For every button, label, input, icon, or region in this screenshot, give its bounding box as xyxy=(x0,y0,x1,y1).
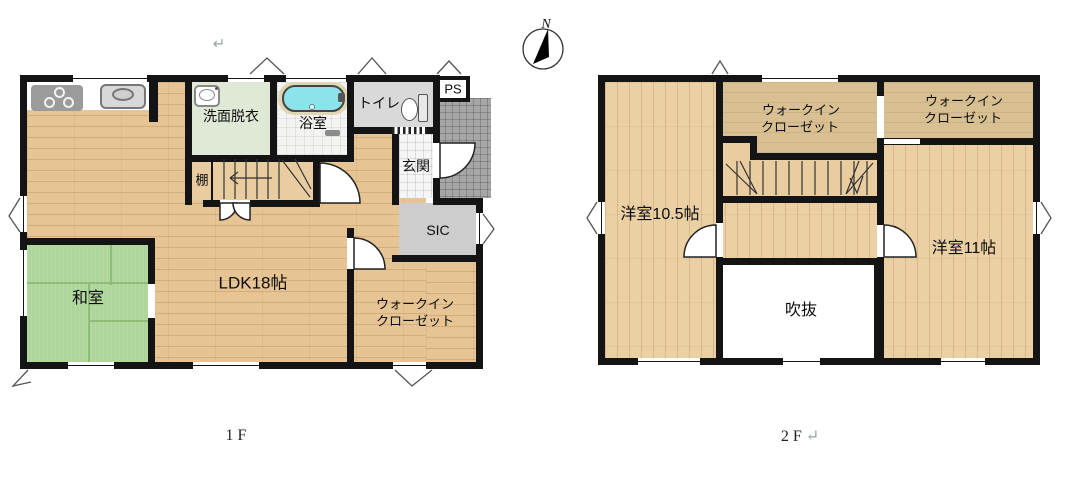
window xyxy=(20,250,27,316)
window xyxy=(598,202,605,234)
label-wic-mid: クローゼット xyxy=(761,121,839,134)
label-toilet: トイレ xyxy=(358,96,400,110)
window xyxy=(638,358,700,365)
wall xyxy=(347,75,354,162)
door-opening xyxy=(220,200,250,207)
window xyxy=(941,358,985,365)
window xyxy=(193,362,259,369)
wall xyxy=(347,269,354,369)
wall xyxy=(148,318,155,369)
window xyxy=(476,213,483,244)
wall xyxy=(877,163,884,225)
stairs-1f xyxy=(213,158,313,200)
label-room105: 洋室10.5帖 xyxy=(620,207,699,223)
faucet-dot-icon xyxy=(215,87,218,90)
sliding-door-opening xyxy=(148,284,155,318)
label-wic-mid: ウォークイン xyxy=(762,104,840,117)
wall xyxy=(250,200,320,207)
shower-mixer-icon xyxy=(325,130,340,136)
toilet-tank-icon xyxy=(418,94,428,122)
wall xyxy=(874,265,882,358)
compass-north-label: N xyxy=(540,17,551,32)
compass: N xyxy=(523,17,563,69)
sink-basin-icon xyxy=(112,88,134,101)
burner-icon xyxy=(54,87,65,98)
label-ps: PS xyxy=(444,83,461,96)
label-wic-1f: クローゼット xyxy=(376,315,454,328)
wall xyxy=(27,238,155,245)
wall xyxy=(347,228,354,238)
wall xyxy=(148,238,155,284)
wall xyxy=(149,75,158,122)
label-wic-right: ウォークイン xyxy=(925,95,1003,108)
window xyxy=(73,75,147,82)
label-washitsu: 和室 xyxy=(72,291,104,307)
label-bathroom: 浴室 xyxy=(299,116,327,130)
wall xyxy=(392,255,483,262)
label-wic-1f: ウォークイン xyxy=(376,298,454,311)
door-opening xyxy=(347,238,354,269)
vent-louver xyxy=(392,127,427,134)
burner-icon xyxy=(44,97,55,108)
compass-needle-icon xyxy=(533,29,549,64)
window xyxy=(68,362,114,369)
window xyxy=(1033,202,1040,234)
label-shelf: 棚 xyxy=(195,174,208,187)
door-opening xyxy=(433,143,440,178)
door-opening xyxy=(716,223,723,257)
stairs-2f xyxy=(723,160,877,196)
tub-drain-icon xyxy=(309,104,315,110)
porch-tile xyxy=(438,98,491,198)
window xyxy=(20,196,27,232)
wall xyxy=(723,136,757,143)
closet-opening xyxy=(884,139,920,144)
label-ldk: LDK18帖 xyxy=(219,275,288,292)
wall xyxy=(716,265,723,358)
wall xyxy=(755,153,884,160)
wall xyxy=(185,155,354,162)
window xyxy=(783,358,820,365)
label-washroom: 洗面脱衣 xyxy=(203,109,259,123)
wall xyxy=(716,258,884,265)
tatami-seam xyxy=(110,245,112,285)
wall xyxy=(203,200,220,207)
tub-faucet-icon xyxy=(338,93,345,102)
paragraph-mark: ↵ xyxy=(213,37,226,52)
wall xyxy=(716,196,884,203)
toilet-bowl-icon xyxy=(401,98,418,121)
window xyxy=(393,362,426,369)
label-entrance: 玄関 xyxy=(402,159,430,173)
washbasin-bowl-icon xyxy=(199,89,215,101)
window xyxy=(228,75,264,82)
burner-icon xyxy=(63,97,74,108)
caption-2f: 2F↵ xyxy=(781,426,819,446)
door-opening xyxy=(877,225,884,257)
label-wic-right: クローゼット xyxy=(924,112,1002,125)
caption-1f: 1F xyxy=(226,427,251,445)
label-sic: SIC xyxy=(426,223,449,237)
floorplan-page: ↵ xyxy=(0,0,1092,496)
caption-2f-paragraph-mark: ↵ xyxy=(806,428,819,445)
wall xyxy=(185,75,192,205)
closet-opening xyxy=(877,96,884,138)
compass-circle xyxy=(523,29,563,69)
window xyxy=(762,75,838,82)
label-void: 吹抜 xyxy=(785,303,817,319)
caption-2f-text: 2F xyxy=(781,428,806,445)
tatami-seam xyxy=(88,320,148,322)
label-room11: 洋室11帖 xyxy=(932,241,997,257)
window xyxy=(286,75,346,82)
wall xyxy=(392,134,399,205)
wall xyxy=(270,75,277,162)
